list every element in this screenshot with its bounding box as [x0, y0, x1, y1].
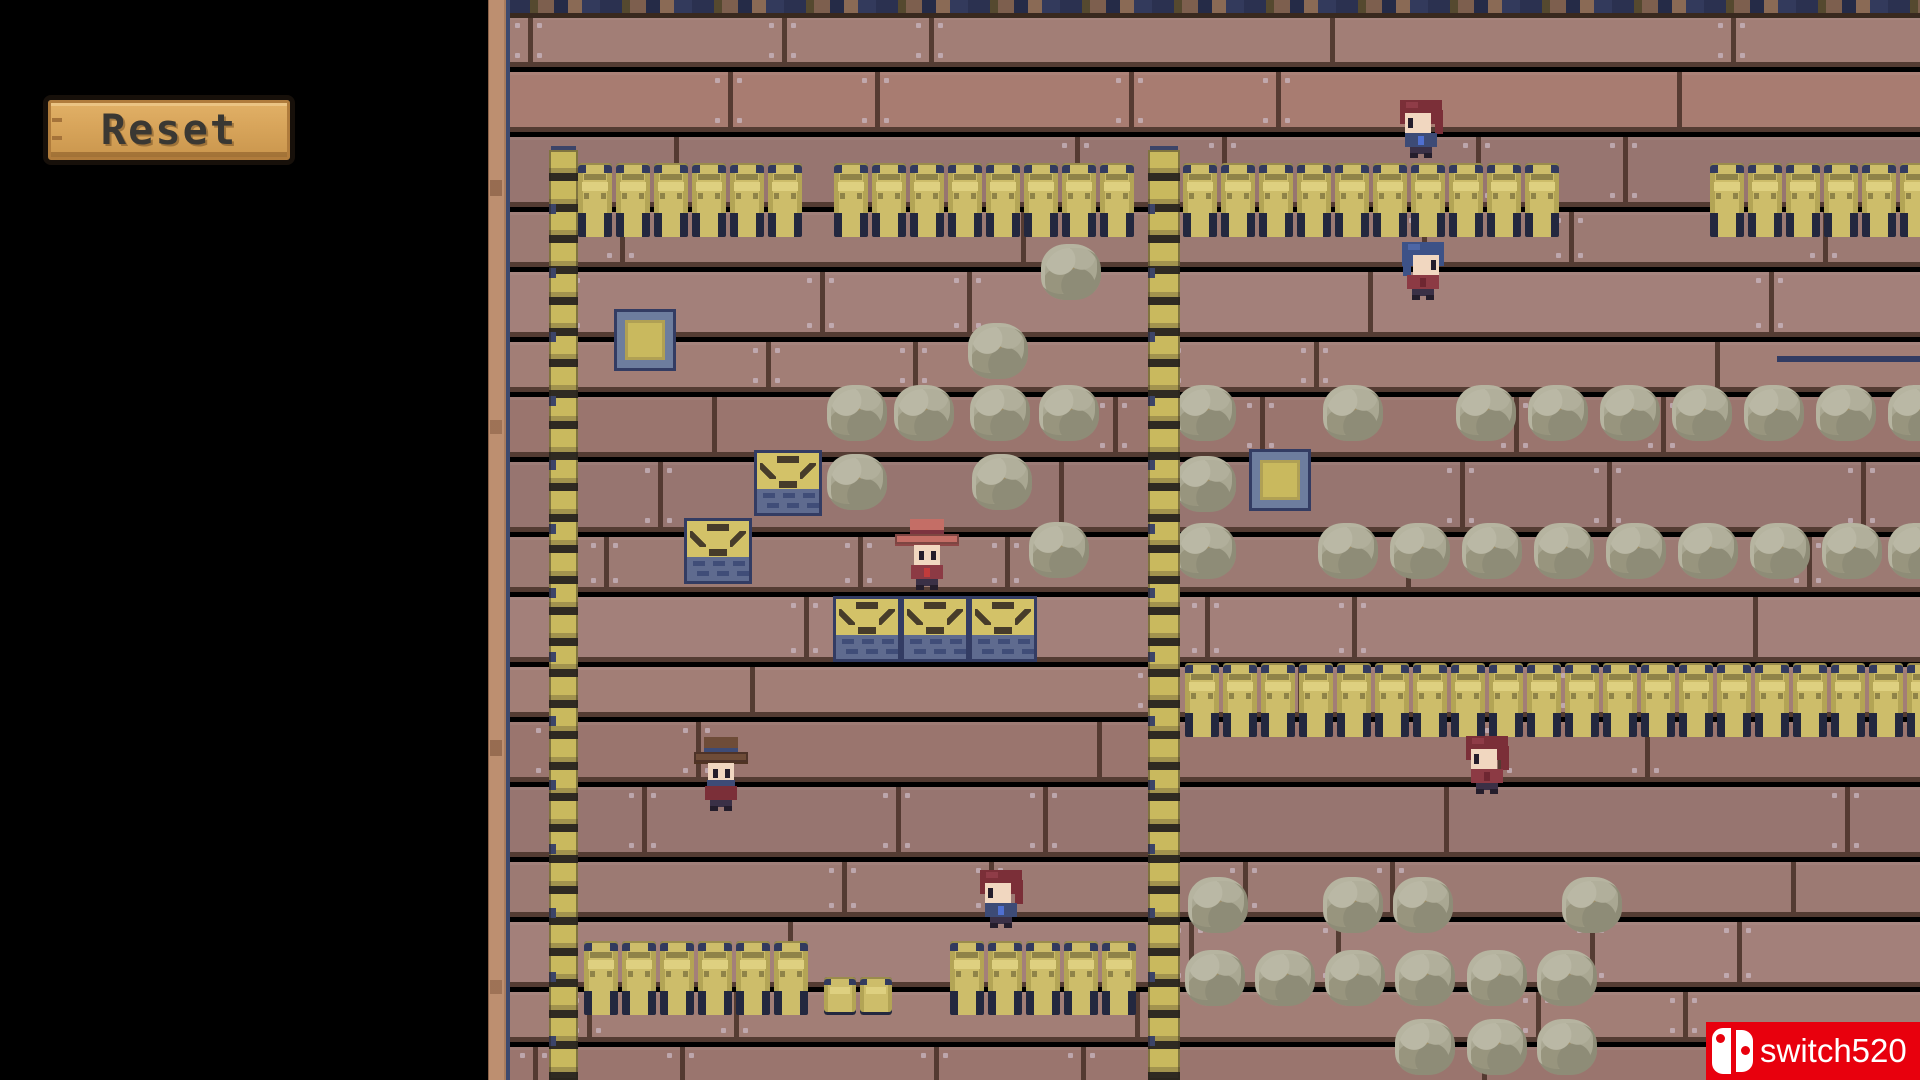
barrel: [1259, 163, 1293, 237]
plank-joint: [1314, 342, 1319, 387]
barrel: [584, 941, 618, 1015]
plank-nail: [905, 843, 910, 848]
plank-nail: [1247, 403, 1252, 408]
rock-boulder: [1606, 523, 1666, 579]
rock-boulder: [894, 385, 954, 441]
torso-accent: [1484, 772, 1490, 781]
rock-boulder: [1176, 385, 1236, 441]
barrel: [1299, 663, 1333, 737]
plank-nail: [1100, 443, 1105, 448]
rock-boulder: [1188, 877, 1248, 933]
plank-joint: [1368, 272, 1373, 332]
plank-nail: [1670, 998, 1675, 1003]
plank-nail: [862, 78, 867, 83]
rock-boulder: [1395, 950, 1455, 1006]
torso: [705, 786, 737, 800]
crate[interactable]: [754, 450, 822, 516]
barrel: [1907, 663, 1920, 737]
game-screen: Reset switch520: [0, 0, 1920, 1080]
torso-accent: [1420, 278, 1426, 287]
character-bluehair[interactable]: [1400, 242, 1446, 310]
plank-nail: [683, 768, 688, 773]
crate-front: [972, 635, 1034, 659]
plank-nail: [1463, 143, 1468, 148]
plank-nail: [542, 1053, 547, 1058]
plank-nail: [1523, 443, 1528, 448]
barrel: [736, 941, 770, 1015]
hair-side: [1015, 880, 1023, 904]
barrel: [578, 163, 612, 237]
crate-lid: [687, 521, 749, 559]
crate-front: [757, 489, 819, 513]
plank-nail: [1301, 348, 1306, 353]
plank-joint: [1276, 72, 1281, 127]
rock-boulder: [1393, 877, 1453, 933]
plank-nail: [1192, 648, 1197, 653]
plank-nail: [667, 1053, 672, 1058]
plank-nail: [1718, 23, 1723, 28]
rock-boulder: [1678, 523, 1738, 579]
crate-lid: [904, 599, 966, 637]
plank-nail: [1599, 973, 1604, 978]
plank-nail: [1870, 468, 1875, 473]
plank-nail: [1632, 193, 1637, 198]
plank-nail: [1138, 118, 1143, 123]
barrel: [1603, 663, 1637, 737]
plank-nail: [515, 53, 520, 58]
eye-right: [725, 769, 730, 778]
plank-nail: [1252, 868, 1257, 873]
plank-joint: [1607, 462, 1612, 527]
plank-nail: [845, 578, 850, 583]
barrel: [986, 163, 1020, 237]
foot-left: [990, 923, 998, 928]
rock-boulder: [827, 454, 887, 510]
plank-joint: [1113, 397, 1118, 452]
foot-right: [724, 806, 732, 811]
plank-nail: [1610, 143, 1615, 148]
barrel: [1641, 663, 1675, 737]
plank-joint: [1769, 272, 1774, 332]
plank-joint: [642, 787, 647, 852]
plank-nail: [1269, 403, 1274, 408]
plank-nail: [1670, 443, 1675, 448]
rock-boulder: [1528, 385, 1588, 441]
eye-right: [931, 551, 936, 560]
plank-nail: [921, 1053, 926, 1058]
plank-nail: [613, 543, 618, 548]
plank-nail: [1632, 143, 1637, 148]
goal-target[interactable]: [617, 312, 673, 368]
top-shelf-board: [508, 13, 1920, 18]
plank-joint: [782, 17, 787, 62]
plank-nail: [992, 543, 997, 548]
barrel: [1449, 163, 1483, 237]
plank-joint: [804, 597, 809, 657]
rock-boulder: [1816, 385, 1876, 441]
rock-boulder: [1888, 385, 1920, 441]
rock-boulder: [1534, 523, 1594, 579]
barrel: [1869, 663, 1903, 737]
barrel: [1297, 163, 1331, 237]
plank-nail: [775, 378, 780, 383]
plank-joint: [1460, 462, 1465, 527]
plank-joint: [728, 72, 733, 127]
barrel: [1487, 163, 1521, 237]
crate[interactable]: [684, 518, 752, 584]
wall-post: [486, 0, 510, 1080]
plank-nail: [992, 578, 997, 583]
rock-boulder: [1467, 950, 1527, 1006]
eye-left: [919, 551, 924, 560]
plank-nail: [1556, 253, 1561, 258]
plank-nail: [1090, 1053, 1095, 1058]
plank-nail: [1323, 928, 1328, 933]
plank-nail: [1138, 673, 1143, 678]
crate[interactable]: [969, 596, 1037, 662]
plank-nail: [629, 793, 634, 798]
plank-joint: [1330, 17, 1335, 62]
plank-joint: [1661, 397, 1666, 452]
rock-boulder: [1041, 244, 1101, 300]
plank-joint: [1260, 397, 1265, 452]
barrel: [1261, 663, 1295, 737]
plank-joint: [750, 667, 755, 712]
foot-left: [1476, 789, 1484, 794]
barrel: [1786, 163, 1820, 237]
plank-nail: [1746, 928, 1751, 933]
character-navy[interactable]: [1398, 100, 1444, 168]
barrel: [834, 163, 868, 237]
plank-nail: [1068, 1053, 1073, 1058]
barrel: [1489, 663, 1523, 737]
plank-nail: [791, 23, 796, 28]
goal-target[interactable]: [1252, 452, 1308, 508]
barrel: [950, 941, 984, 1015]
hair-highlight: [1408, 244, 1420, 250]
plank-nail: [1447, 468, 1452, 473]
foot-right: [1004, 923, 1012, 928]
eye: [988, 888, 993, 898]
hair-side: [1501, 746, 1509, 770]
rock-boulder: [1255, 950, 1315, 1006]
plank-joint: [1791, 862, 1796, 912]
plank-nail: [1594, 468, 1599, 473]
rock-boulder: [1600, 385, 1660, 441]
crate[interactable]: [833, 596, 901, 662]
plank-joint: [1444, 787, 1449, 852]
plank-nail: [1084, 143, 1089, 148]
plank-nail: [1578, 253, 1583, 258]
rock-boulder: [1185, 950, 1245, 1006]
plank-nail: [1062, 143, 1067, 148]
plank-nail: [1052, 843, 1057, 848]
plank-nail: [1122, 403, 1127, 408]
plank-nail: [1632, 768, 1637, 773]
rock-boulder: [1672, 385, 1732, 441]
plank-nail: [976, 278, 981, 283]
plank-nail: [1138, 703, 1143, 708]
plank-nail: [1263, 118, 1268, 123]
plank-nail: [1794, 578, 1799, 583]
plank-nail: [591, 578, 596, 583]
plank-nail: [1778, 278, 1783, 283]
plank-nail: [629, 253, 634, 258]
plank-nail: [867, 543, 872, 548]
barrel: [1527, 663, 1561, 737]
floor-plank-row: [508, 272, 1920, 337]
rock-boulder: [1395, 1019, 1455, 1075]
plank-nail: [1648, 443, 1653, 448]
plank-nail: [1756, 278, 1761, 283]
barrel: [872, 163, 906, 237]
plank-nail: [1263, 78, 1268, 83]
character-navy[interactable]: [978, 870, 1024, 938]
small-keg: [860, 977, 892, 1015]
plank-nail: [1116, 78, 1121, 83]
rock-boulder: [1462, 523, 1522, 579]
plank-nail: [884, 78, 889, 83]
plank-nail: [791, 603, 796, 608]
floor-plank-row: [508, 597, 1920, 662]
plank-nail: [591, 543, 596, 548]
plank-joint: [1737, 922, 1742, 982]
crate[interactable]: [901, 596, 969, 662]
character-hat_salmon[interactable]: [894, 518, 960, 586]
plank-nail: [1848, 468, 1853, 473]
eye: [1431, 260, 1436, 270]
barrel: [654, 163, 688, 237]
plank-nail: [916, 23, 921, 28]
plank-nail: [715, 118, 720, 123]
plank-nail: [667, 518, 672, 523]
plank-joint: [875, 72, 880, 127]
plank-nail: [916, 53, 921, 58]
ladder-column: [549, 150, 578, 1080]
plank-nail: [1740, 23, 1745, 28]
plank-nail: [829, 868, 834, 873]
plank-nail: [1523, 998, 1528, 1003]
plank-nail: [1447, 518, 1452, 523]
barrel: [1223, 663, 1257, 737]
reset-button[interactable]: Reset: [43, 95, 295, 165]
plank-nail: [1377, 868, 1382, 873]
plank-nail: [1469, 468, 1474, 473]
character-maroon[interactable]: [1464, 736, 1510, 804]
plank-nail: [1832, 253, 1837, 258]
watermark-badge[interactable]: switch520: [1706, 1022, 1920, 1080]
plank-nail: [1654, 768, 1659, 773]
plank-nail: [645, 468, 650, 473]
rock-boulder: [1467, 1019, 1527, 1075]
plank-joint: [1683, 992, 1688, 1037]
plank-nail: [883, 843, 888, 848]
barrel: [1565, 663, 1599, 737]
plank-joint: [1205, 597, 1210, 657]
barrel: [660, 941, 694, 1015]
plank-nail: [1740, 53, 1745, 58]
plank-nail: [1323, 378, 1328, 383]
plank-nail: [1100, 403, 1105, 408]
barrel: [988, 941, 1022, 1015]
rock-boulder: [1888, 523, 1920, 579]
barrel: [1862, 163, 1896, 237]
rock-boulder: [1176, 523, 1236, 579]
plank-nail: [1692, 1028, 1697, 1033]
plank-nail: [829, 903, 834, 908]
wall-edge-line: [1777, 356, 1920, 362]
rock-boulder: [1176, 456, 1236, 512]
barrel: [774, 941, 808, 1015]
barrel: [1900, 163, 1920, 237]
barrel: [1375, 663, 1409, 737]
plank-nail: [651, 793, 656, 798]
plank-nail: [1339, 648, 1344, 653]
plank-nail: [1052, 793, 1057, 798]
character-hat_brown[interactable]: [693, 736, 749, 804]
plank-nail: [769, 23, 774, 28]
barrel: [1710, 163, 1744, 237]
rock-boulder: [1822, 523, 1882, 579]
plank-nail: [900, 348, 905, 353]
barrel: [1824, 163, 1858, 237]
plank-nail: [954, 278, 959, 283]
foot-left: [916, 585, 924, 590]
ladder-column: [1148, 150, 1180, 1080]
plank-nail: [1192, 603, 1197, 608]
hair-highlight: [1406, 102, 1418, 108]
plank-nail: [829, 323, 834, 328]
barrel: [1451, 663, 1485, 737]
plank-nail: [922, 348, 927, 353]
plank-joint: [1097, 722, 1102, 777]
crate-lid: [836, 599, 898, 637]
hair-side: [1435, 110, 1443, 134]
barrel: [1026, 941, 1060, 1015]
barrel: [1183, 163, 1217, 237]
barrel: [1413, 663, 1447, 737]
rock-boulder: [970, 385, 1030, 441]
plank-joint: [1623, 137, 1628, 202]
plank-joint: [1861, 462, 1866, 527]
plank-joint: [967, 272, 972, 332]
plank-nail: [1670, 1028, 1675, 1033]
plank-nail: [689, 1053, 694, 1058]
eye-left: [713, 769, 718, 778]
rock-boulder: [1562, 877, 1622, 933]
plank-nail: [1339, 603, 1344, 608]
hat-brim: [895, 534, 959, 544]
plank-nail: [1718, 53, 1723, 58]
barrel: [622, 941, 656, 1015]
plank-nail: [1122, 443, 1127, 448]
plank-nail: [807, 323, 812, 328]
barrel: [698, 941, 732, 1015]
plank-joint: [604, 537, 609, 587]
hair-highlight: [986, 872, 998, 878]
plank-nail: [1485, 143, 1490, 148]
plank-joint: [820, 272, 825, 332]
plank-nail: [1810, 253, 1815, 258]
plank-nail: [1832, 793, 1837, 798]
plank-joint: [929, 17, 934, 62]
plank-nail: [1231, 143, 1236, 148]
torso-accent: [1418, 136, 1424, 145]
floor-plank-row: [508, 17, 1920, 67]
rock-boulder: [1750, 523, 1810, 579]
plank-joint: [766, 342, 771, 387]
plank-nail: [515, 23, 520, 28]
crate-lid: [757, 453, 819, 491]
plank-nail: [900, 378, 905, 383]
plank-nail: [1361, 603, 1366, 608]
plank-nail: [1854, 843, 1859, 848]
foot-left: [710, 806, 718, 811]
plank-nail: [1285, 118, 1290, 123]
plank-nail: [813, 603, 818, 608]
plank-joint: [1352, 597, 1357, 657]
eye: [1408, 118, 1413, 128]
torso-accent: [998, 906, 1004, 915]
crate-front: [687, 557, 749, 581]
plank-nail: [1469, 518, 1474, 523]
barrel: [1024, 163, 1058, 237]
plank-nail: [1594, 518, 1599, 523]
plank-nail: [884, 118, 889, 123]
plank-joint: [533, 1047, 538, 1080]
barrel: [1679, 663, 1713, 737]
plank-nail: [1746, 973, 1751, 978]
plank-joint: [528, 17, 533, 62]
torso-accent: [924, 568, 930, 577]
plank-nail: [1285, 78, 1290, 83]
plank-nail: [629, 843, 634, 848]
plank-nail: [829, 278, 834, 283]
rock-boulder: [1325, 950, 1385, 1006]
plank-nail: [1116, 118, 1121, 123]
rock-boulder: [827, 385, 887, 441]
hair-highlight: [1472, 738, 1484, 744]
rock-boulder: [1039, 385, 1099, 441]
plank-nail: [1724, 928, 1729, 933]
plank-joint: [1005, 537, 1010, 587]
plank-nail: [851, 903, 856, 908]
barrel: [616, 163, 650, 237]
plank-nail: [1778, 323, 1783, 328]
barrel: [1411, 163, 1445, 237]
plank-nail: [938, 23, 943, 28]
plank-nail: [1269, 443, 1274, 448]
barrel: [1102, 941, 1136, 1015]
plank-nail: [791, 648, 796, 653]
barrel: [1335, 163, 1369, 237]
plank-nail: [1030, 793, 1035, 798]
foot-right: [1424, 153, 1432, 158]
plank-nail: [705, 728, 710, 733]
plank-nail: [596, 1028, 601, 1033]
plank-nail: [753, 378, 758, 383]
plank-joint: [1059, 462, 1064, 527]
plank-joint: [1845, 787, 1850, 852]
plank-nail: [1870, 518, 1875, 523]
plank-nail: [536, 768, 541, 773]
rock-boulder: [1323, 385, 1383, 441]
barrel: [1373, 163, 1407, 237]
rock-boulder: [1029, 522, 1089, 578]
plank-nail: [1616, 518, 1621, 523]
plank-nail: [905, 793, 910, 798]
foot-right: [1426, 295, 1434, 300]
